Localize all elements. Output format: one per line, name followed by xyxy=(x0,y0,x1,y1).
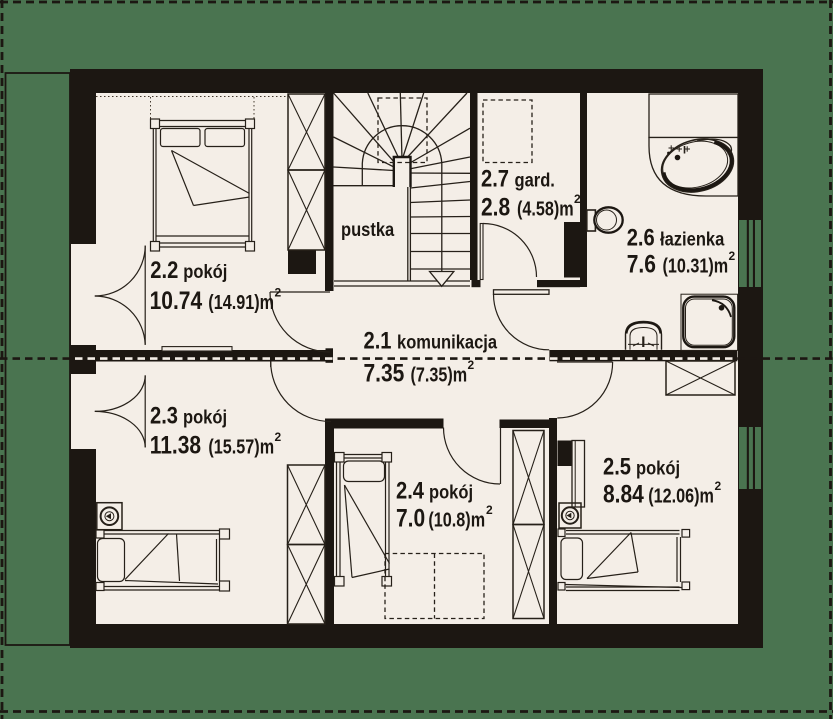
svg-text:pokój: pokój xyxy=(183,261,227,282)
svg-text:2.8: 2.8 xyxy=(481,193,510,221)
svg-text:7.6: 7.6 xyxy=(627,250,656,278)
svg-text:komunikacja: komunikacja xyxy=(397,331,498,352)
svg-text:(4.58)m: (4.58)m xyxy=(517,198,574,220)
svg-text:2.1: 2.1 xyxy=(364,327,392,354)
svg-text:10.74: 10.74 xyxy=(150,286,203,314)
svg-text:2: 2 xyxy=(468,358,475,372)
svg-text:(7.35)m: (7.35)m xyxy=(411,364,468,386)
svg-text:2: 2 xyxy=(715,479,722,493)
svg-text:łazienka: łazienka xyxy=(660,228,725,249)
svg-text:pokój: pokój xyxy=(429,481,473,502)
svg-text:2.3: 2.3 xyxy=(150,402,178,429)
svg-text:(14.91)m: (14.91)m xyxy=(208,291,274,313)
svg-text:(15.57)m: (15.57)m xyxy=(208,436,274,458)
svg-text:pokój: pokój xyxy=(183,406,227,427)
svg-text:(10.31)m: (10.31)m xyxy=(663,255,729,277)
svg-text:2.7: 2.7 xyxy=(481,165,509,192)
svg-text:2: 2 xyxy=(574,192,581,206)
svg-text:pokój: pokój xyxy=(636,457,680,478)
svg-text:2.5: 2.5 xyxy=(603,453,631,480)
svg-text:gard.: gard. xyxy=(515,169,555,190)
svg-text:11.38: 11.38 xyxy=(150,431,202,459)
svg-text:2.4: 2.4 xyxy=(396,477,425,504)
svg-text:2.2: 2.2 xyxy=(150,256,178,283)
svg-text:8.84: 8.84 xyxy=(603,480,644,508)
svg-text:2.6: 2.6 xyxy=(627,224,655,251)
svg-text:pustka: pustka xyxy=(341,219,395,240)
svg-text:2: 2 xyxy=(275,430,282,444)
svg-text:2: 2 xyxy=(275,286,282,300)
svg-text:7.35: 7.35 xyxy=(364,359,405,387)
svg-text:2: 2 xyxy=(729,249,736,263)
svg-text:(10.8)m: (10.8)m xyxy=(428,509,485,531)
svg-text:2: 2 xyxy=(486,503,493,517)
svg-text:(12.06)m: (12.06)m xyxy=(648,485,714,507)
svg-text:7.0: 7.0 xyxy=(396,504,425,532)
